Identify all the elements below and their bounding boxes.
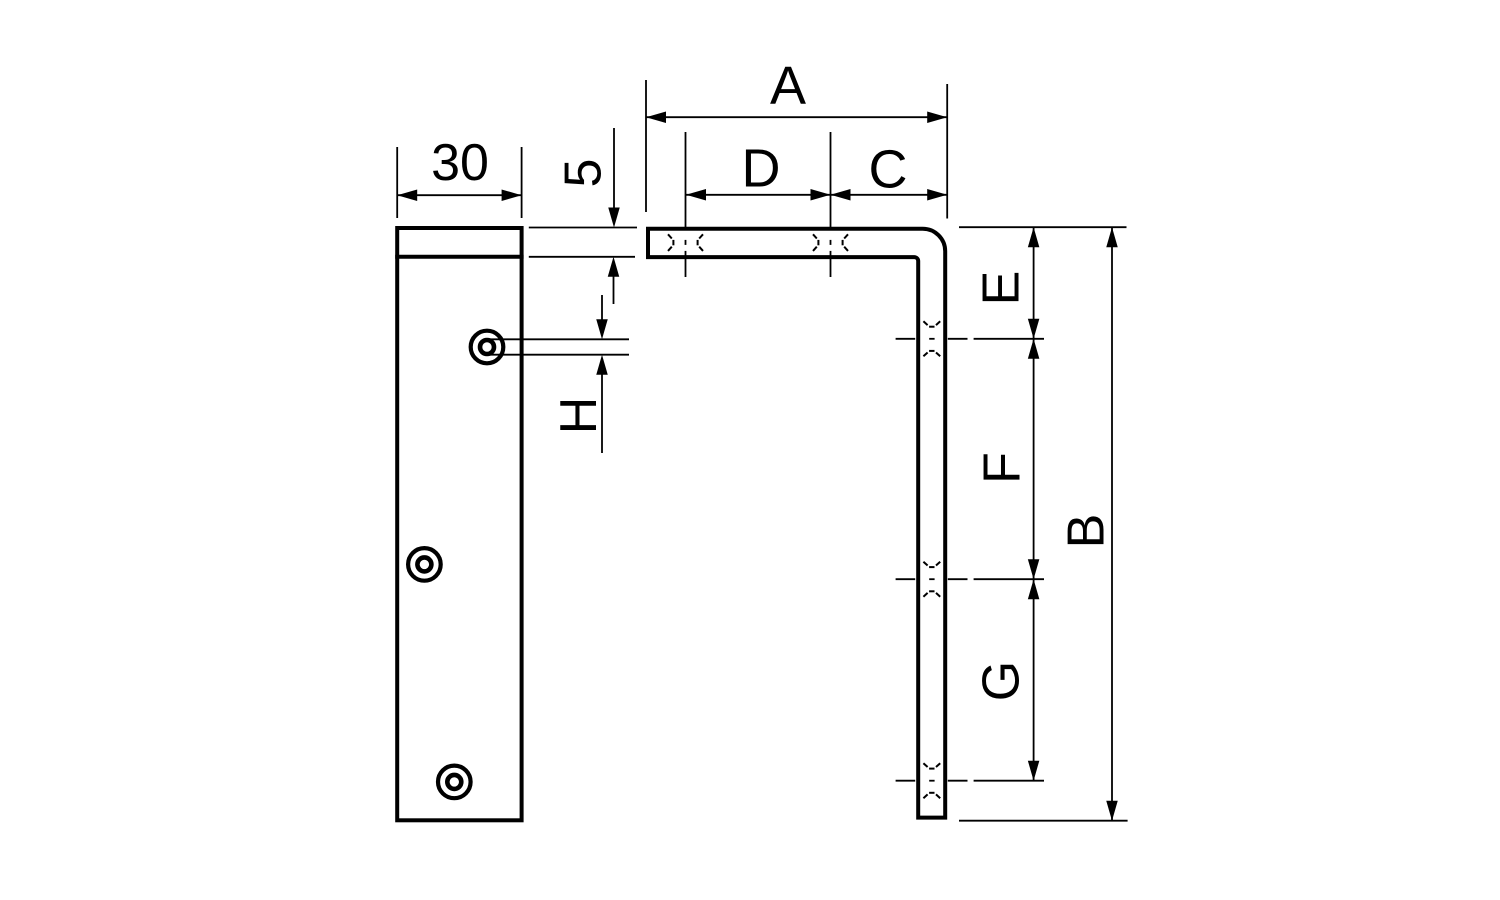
svg-text:H: H	[550, 397, 608, 435]
svg-text:B: B	[1058, 514, 1116, 549]
svg-text:A: A	[770, 56, 806, 116]
svg-text:30: 30	[431, 134, 489, 192]
svg-text:E: E	[973, 271, 1031, 306]
svg-text:F: F	[974, 452, 1032, 484]
svg-text:C: C	[869, 140, 908, 200]
svg-text:D: D	[742, 139, 781, 199]
svg-text:G: G	[973, 661, 1031, 701]
svg-text:5: 5	[555, 159, 613, 188]
